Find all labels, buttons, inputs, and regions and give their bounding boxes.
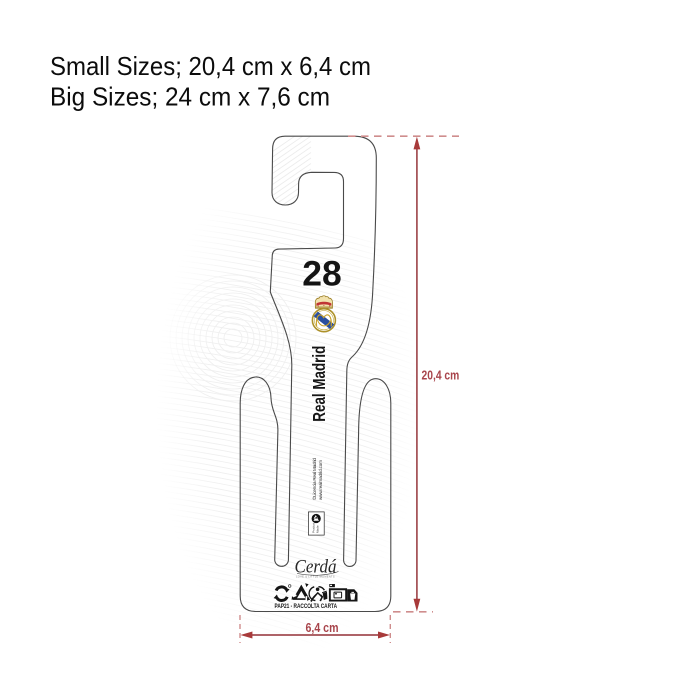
svg-text:Made: Made (316, 525, 320, 533)
svg-text:6,4 cm: 6,4 cm (306, 621, 339, 635)
svg-text:www.realmadrid.com: www.realmadrid.com (318, 460, 323, 500)
svg-text:Small Sizes; 20,4 cm x 6,4 cm: Small Sizes; 20,4 cm x 6,4 cm (50, 51, 371, 81)
svg-text:20,4 cm: 20,4 cm (422, 368, 460, 382)
svg-text:Big Sizes; 24 cm x 7,6 cm: Big Sizes; 24 cm x 7,6 cm (50, 82, 330, 112)
svg-text:©Licencia Real Madrid: ©Licencia Real Madrid (311, 458, 317, 500)
svg-text:28: 28 (302, 254, 342, 294)
svg-text:PAP21 - RACCOLTA CARTA: PAP21 - RACCOLTA CARTA (275, 604, 338, 610)
svg-text:Real Madrid: Real Madrid (309, 346, 329, 422)
svg-text:LOVE & LITTLE MOMENTS: LOVE & LITTLE MOMENTS (296, 574, 335, 578)
